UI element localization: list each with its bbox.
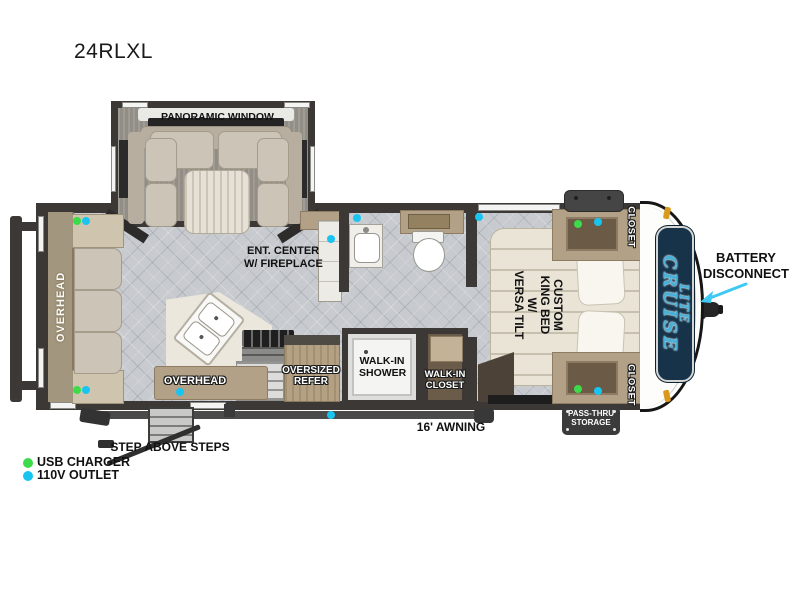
rear-bumper [10, 216, 22, 402]
pass-thru-rivet-3 [566, 428, 569, 431]
door-frame-block [224, 404, 235, 417]
usb-charger-dot [73, 217, 81, 225]
bath-overhead-door [408, 214, 450, 229]
refrigerator-top-vent [284, 335, 340, 345]
wall-bath-left [339, 209, 349, 292]
110v-outlet-dot [82, 217, 90, 225]
pass-thru-rivet-1 [566, 410, 569, 413]
dinette-cushion-left-2 [145, 183, 177, 227]
bed-label-line3: VERSA TILT [512, 270, 525, 340]
rear-overhead-label-text: OVERHEAD [55, 272, 67, 342]
bath-sink [354, 233, 380, 263]
battery-disconnect-arrow [696, 279, 752, 307]
110v-outlet-dot [82, 386, 90, 394]
stove-front [242, 347, 288, 361]
dinette-table [184, 170, 250, 234]
shower-drain [364, 350, 368, 354]
closet-bottom-label: CLOSET [620, 362, 642, 408]
brand-logo-cruise: CRUISE [661, 255, 678, 353]
steps-label: STEP ABOVE STEPS [109, 441, 231, 454]
rear-window-top [38, 216, 44, 252]
dinette-cushion-right-2 [257, 183, 289, 227]
closet-top-label-text: CLOSET [626, 206, 637, 248]
floorplan-page: 24RLXL [0, 0, 800, 600]
rear-sofa-cushion-3 [74, 332, 122, 374]
wcloset-label-1: WALK-IN [422, 370, 468, 380]
closet-top-label: CLOSET [620, 204, 642, 250]
kitchen-overhead-label: OVERHEAD [160, 376, 230, 388]
pass-thru-rivet-4 [613, 428, 616, 431]
dinette-seat-left-frame [128, 132, 144, 224]
legend: USB CHARGER 110V OUTLET [23, 456, 130, 482]
wcloset-label-2: CLOSET [422, 381, 468, 391]
110v-outlet-dot [353, 214, 361, 222]
refer-label-2: REFER [282, 377, 340, 388]
shower-label-2: SHOWER [359, 368, 405, 379]
pass-thru-label-2: STORAGE [562, 419, 620, 427]
rear-sofa-cushion-2 [74, 290, 122, 332]
bath-faucet [363, 227, 369, 233]
usb-charger-dot [574, 385, 582, 393]
closet-bottom-label-text: CLOSET [626, 364, 637, 406]
dinette-cushion-left-1 [145, 138, 177, 182]
ent-center-label-2: W/ FIREPLACE [244, 259, 320, 271]
pass-thru-rivet-2 [613, 410, 616, 413]
walk-in-closet-shelf [430, 336, 463, 362]
110v-outlet-dot [475, 213, 483, 221]
rear-sofa-cushion-1 [74, 248, 122, 290]
battery-label-1: BATTERY [704, 251, 788, 265]
dinette-cushion-right-1 [257, 138, 289, 182]
shower-label-1: WALK-IN [359, 356, 405, 367]
usb-charger-dot [574, 220, 582, 228]
ent-center-label-1: ENT. CENTER [247, 246, 317, 258]
bed-label: CUSTOM KING BED W/ VERSA TILT [468, 230, 608, 380]
usb-charger-legend-dot [23, 458, 33, 468]
floor-plan: OVERHEAD [0, 0, 800, 600]
bedroom-window-top [478, 204, 560, 211]
110v-outlet-dot [327, 235, 335, 243]
rear-window-bottom [38, 348, 44, 388]
bed-label-line1: CUSTOM [551, 270, 564, 340]
110v-outlet-dot [594, 218, 602, 226]
toilet-bowl [413, 238, 445, 272]
110v-outlet-dot [594, 387, 602, 395]
bed-label-line2: KING BED W/ [525, 270, 551, 340]
rear-overhead-label: OVERHEAD [48, 212, 74, 402]
outlet-legend-label: 110V OUTLET [37, 469, 119, 482]
outlet-legend-dot [23, 471, 33, 481]
roof-vent-dot-2 [607, 196, 611, 200]
110v-outlet-dot [327, 411, 335, 419]
refer-label-1: OVERSIZED [282, 366, 340, 377]
usb-charger-dot [73, 386, 81, 394]
panoramic-window-label: PANORAMIC WINDOW [161, 112, 271, 123]
slide-side-slot-left [111, 146, 116, 192]
awning-label: 16' AWNING [401, 421, 501, 434]
entry-door-opening [190, 402, 226, 409]
slide-side-slot-right [310, 146, 315, 192]
roof-vent-dot-1 [574, 196, 578, 200]
110v-outlet-dot [176, 388, 184, 396]
roof-vent [564, 190, 624, 212]
brand-logo: LITE CRUISE [656, 226, 694, 382]
